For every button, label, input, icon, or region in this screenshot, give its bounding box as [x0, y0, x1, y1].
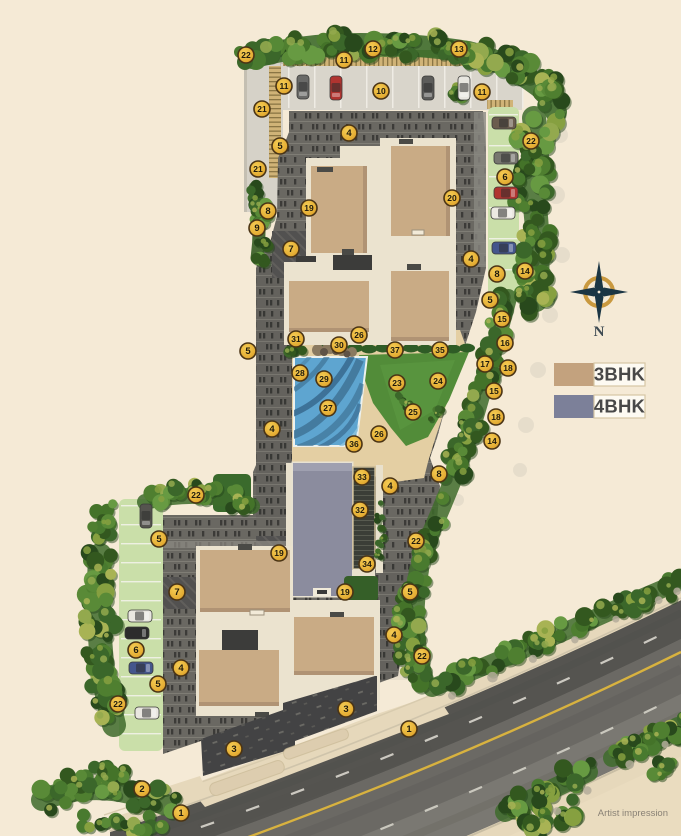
svg-text:8: 8	[436, 469, 441, 480]
svg-text:5: 5	[407, 587, 413, 598]
svg-text:8: 8	[265, 206, 270, 217]
svg-text:6: 6	[133, 645, 138, 656]
svg-text:4: 4	[391, 630, 397, 641]
svg-text:18: 18	[503, 363, 513, 373]
svg-text:N: N	[594, 324, 605, 340]
svg-text:24: 24	[433, 376, 443, 386]
svg-text:4: 4	[468, 254, 474, 265]
svg-text:33: 33	[357, 472, 367, 482]
svg-text:11: 11	[340, 55, 349, 65]
svg-text:22: 22	[241, 50, 251, 60]
svg-text:4: 4	[269, 424, 275, 435]
svg-text:5: 5	[156, 534, 162, 545]
svg-text:3: 3	[231, 744, 236, 755]
svg-text:25: 25	[408, 407, 418, 417]
svg-text:36: 36	[349, 439, 359, 449]
svg-text:7: 7	[288, 244, 293, 255]
svg-text:7: 7	[174, 587, 179, 598]
svg-text:15: 15	[489, 386, 499, 396]
svg-text:22: 22	[411, 536, 421, 546]
svg-text:19: 19	[274, 548, 284, 558]
svg-text:13: 13	[454, 44, 464, 54]
svg-text:32: 32	[355, 505, 365, 515]
svg-text:4: 4	[387, 481, 393, 492]
svg-text:4: 4	[178, 663, 184, 674]
svg-text:5: 5	[487, 295, 493, 306]
svg-text:37: 37	[390, 345, 400, 355]
svg-text:5: 5	[245, 346, 251, 357]
svg-text:14: 14	[487, 436, 497, 446]
svg-text:30: 30	[334, 340, 344, 350]
svg-text:11: 11	[280, 81, 289, 91]
svg-text:4: 4	[346, 128, 352, 139]
svg-text:35: 35	[435, 345, 445, 355]
svg-text:14: 14	[520, 266, 530, 276]
svg-text:19: 19	[304, 203, 314, 213]
svg-text:17: 17	[480, 359, 490, 369]
svg-text:31: 31	[291, 334, 301, 344]
svg-text:8: 8	[494, 269, 499, 280]
svg-text:21: 21	[257, 104, 267, 114]
svg-text:6: 6	[502, 172, 507, 183]
svg-text:4BHK: 4BHK	[594, 396, 646, 417]
svg-text:20: 20	[447, 193, 457, 203]
svg-text:23: 23	[392, 378, 402, 388]
svg-text:9: 9	[254, 223, 259, 234]
svg-text:12: 12	[368, 44, 378, 54]
svg-text:15: 15	[497, 314, 507, 324]
svg-text:21: 21	[253, 164, 263, 174]
svg-text:22: 22	[113, 699, 123, 709]
svg-text:2: 2	[139, 784, 144, 795]
svg-text:3: 3	[343, 704, 348, 715]
svg-text:19: 19	[340, 587, 350, 597]
svg-text:22: 22	[526, 136, 536, 146]
svg-text:29: 29	[319, 374, 329, 384]
svg-text:5: 5	[277, 141, 283, 152]
svg-text:22: 22	[417, 651, 427, 661]
svg-text:Artist impression: Artist impression	[598, 808, 668, 819]
svg-text:1: 1	[178, 808, 184, 819]
svg-text:27: 27	[323, 403, 333, 413]
svg-text:26: 26	[374, 429, 384, 439]
svg-text:1: 1	[406, 724, 412, 735]
svg-text:34: 34	[362, 559, 372, 569]
svg-text:18: 18	[491, 412, 501, 422]
svg-text:16: 16	[500, 338, 510, 348]
svg-text:5: 5	[155, 679, 161, 690]
svg-text:3BHK: 3BHK	[594, 364, 646, 385]
svg-text:28: 28	[295, 368, 305, 378]
svg-text:22: 22	[191, 490, 201, 500]
svg-text:11: 11	[478, 87, 487, 97]
svg-text:10: 10	[376, 86, 386, 96]
svg-text:26: 26	[354, 330, 364, 340]
